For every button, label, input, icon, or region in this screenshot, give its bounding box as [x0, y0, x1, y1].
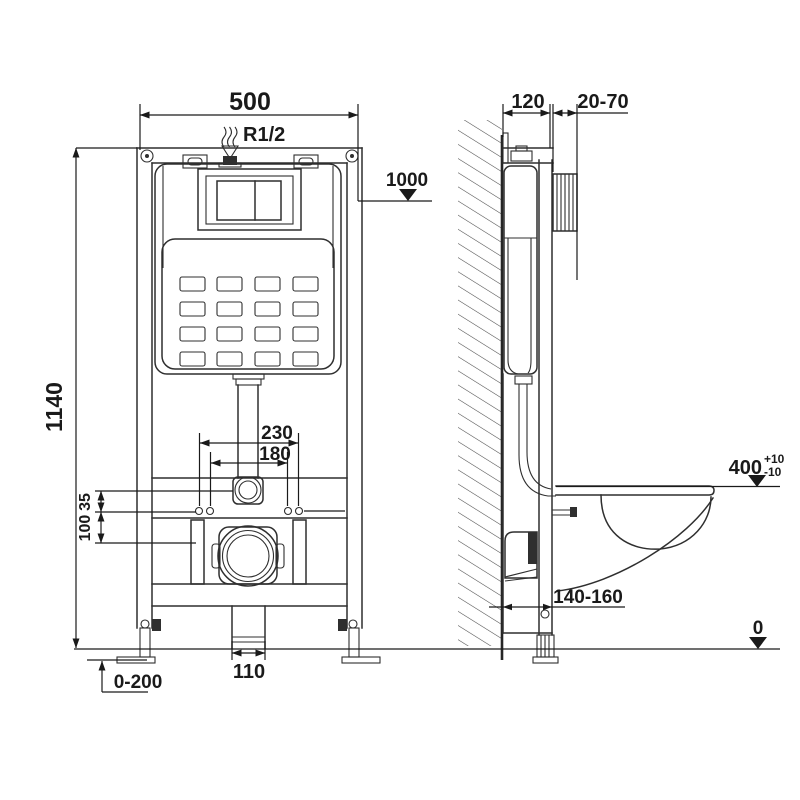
dim-inlet-to-holes-label: 35	[77, 493, 94, 511]
drawing-sheet: 500 R1/2 1140 1000 230 180	[0, 0, 800, 800]
dim-drain-outlet-range: 140-160	[489, 587, 625, 610]
bracket-plate-left	[191, 520, 204, 584]
dim-foot-adjustment: 0-200	[87, 660, 162, 693]
dim-bolt-spacing-inner: 180	[211, 444, 291, 506]
dim-foot-adjustment-label: 0-200	[114, 672, 163, 693]
adjustable-foot-right	[338, 619, 380, 663]
dim-bowl-level-label: 400	[729, 457, 762, 479]
dim-front-width-label: 500	[229, 88, 271, 116]
front-view	[117, 127, 380, 663]
dim-floor-level-label: 0	[753, 618, 764, 639]
dim-actuator-level: 1000	[358, 170, 432, 201]
dim-panel-range-label: 20-70	[577, 91, 628, 113]
dim-frame-depth-label: 120	[511, 91, 544, 113]
flush-bend-side	[515, 376, 556, 496]
wc-bowl-profile	[552, 486, 714, 591]
frame-rail-side	[539, 160, 552, 635]
dim-drain-outlet-range-label: 140-160	[553, 587, 623, 608]
dim-actuator-level-label: 1000	[386, 170, 428, 191]
cistern-body	[155, 164, 341, 374]
inlet-thread-label: R1/2	[243, 124, 285, 146]
technical-drawing: 500 R1/2 1140 1000 230 180	[0, 0, 800, 800]
dim-frame-depth: 120	[503, 91, 550, 148]
bottom-rail	[152, 584, 347, 606]
dim-floor-level: 0	[74, 618, 780, 649]
drain-outlet-pipe	[232, 606, 265, 648]
cistern-profile-side	[504, 166, 537, 374]
top-wall-bracket	[503, 133, 553, 163]
fixing-bolt-holes	[196, 508, 303, 515]
adjustable-foot-left	[117, 619, 161, 663]
drain-clamp	[212, 526, 284, 586]
corner-screws	[141, 150, 358, 162]
fixing-stud	[570, 507, 577, 517]
dim-bolt-spacing-inner-label: 180	[259, 444, 291, 465]
actuator-spacer-block	[553, 174, 577, 231]
hanger-slot-brackets	[183, 155, 318, 168]
side-view	[458, 120, 714, 663]
wall-hatching	[458, 120, 502, 646]
dim-bowl-level: 400 +10 -10	[556, 452, 785, 487]
dim-frame-height-label: 1140	[41, 382, 67, 432]
flush-elbow-fitting	[233, 477, 263, 504]
dim-frame-height: 1140	[41, 148, 137, 648]
flush-actuator-panel	[198, 169, 301, 230]
dim-bowl-level-tol-plus: +10	[764, 452, 785, 466]
water-inlet-fitting	[219, 127, 241, 167]
dim-drain-pipe-width-label: 110	[233, 661, 265, 683]
dim-panel-range: 20-70	[553, 91, 629, 280]
dim-holes-to-drain-label: 100	[77, 515, 94, 542]
cistern-knockout-grid	[180, 277, 318, 366]
dim-bolt-spacing-outer-label: 230	[261, 423, 293, 444]
dim-bowl-level-tol-minus: -10	[764, 465, 782, 479]
bracket-plate-right	[293, 520, 306, 584]
dim-drain-pipe-width: 110	[232, 641, 265, 683]
